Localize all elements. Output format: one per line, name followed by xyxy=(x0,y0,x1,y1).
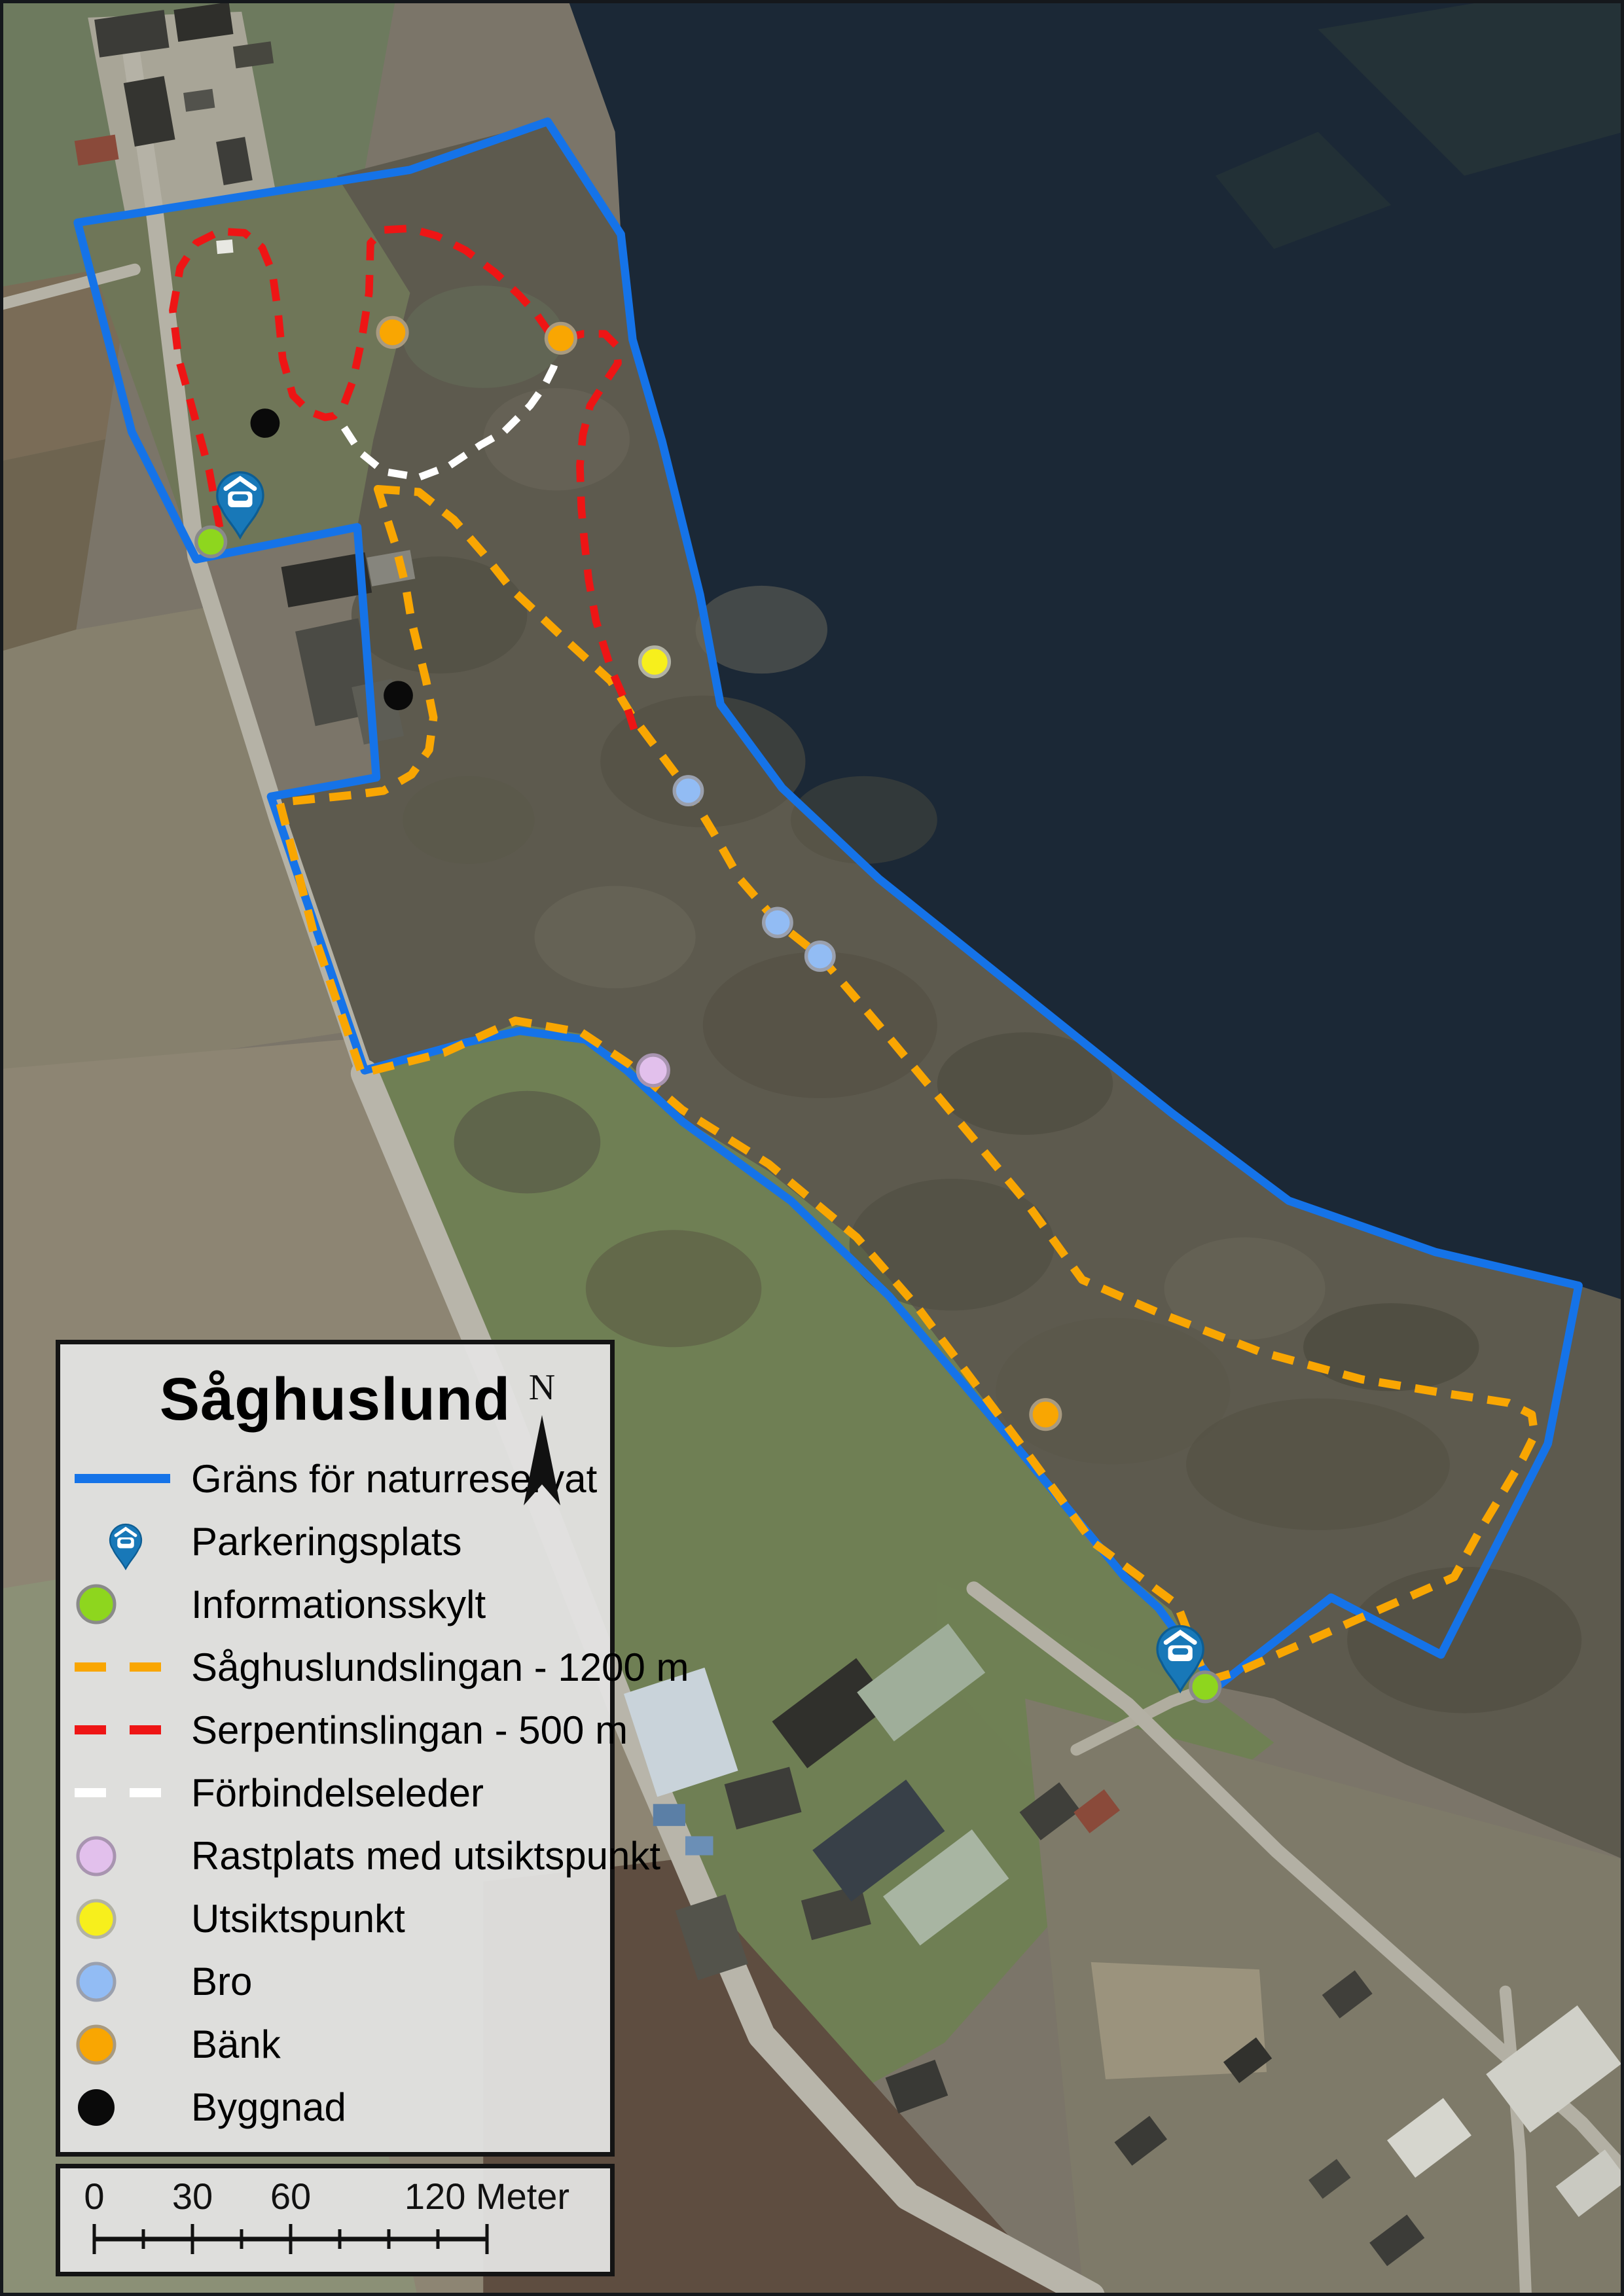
legend-item-dash-5: Förbindelseleder xyxy=(60,1764,610,1821)
forest-texture-blob xyxy=(1186,1399,1450,1530)
legend-item-label: Bänk xyxy=(191,2022,281,2067)
trail-dash-swatch xyxy=(60,1638,191,1696)
bro-dot-icon xyxy=(60,1953,191,2011)
legend-item-utsikt-7: Utsiktspunkt xyxy=(60,1890,610,1948)
bro-dot-swatch xyxy=(60,1953,191,2011)
legend-item-bro-8: Bro xyxy=(60,1953,610,2011)
bench-dot xyxy=(78,2026,115,2063)
legend-item-label: Utsiktspunkt xyxy=(191,1896,405,1941)
legend-item-label: Förbindelseleder xyxy=(191,1770,484,1816)
legend-item-label: Bro xyxy=(191,1959,252,2004)
north-label: N xyxy=(529,1368,555,1408)
bench-dot-swatch xyxy=(60,2016,191,2073)
legend-item-byggnad-10: Byggnad xyxy=(60,2079,610,2136)
rast-dot-icon xyxy=(60,1827,191,1885)
bro-marker xyxy=(764,908,792,937)
byggnad-dot xyxy=(78,2089,115,2126)
legend-items: Gräns för naturreservatParkeringsplatsIn… xyxy=(60,1446,610,2143)
car-window-icon xyxy=(232,494,248,501)
building xyxy=(653,1804,685,1826)
trail-dash-swatch xyxy=(60,1701,191,1759)
bench-marker xyxy=(1031,1400,1060,1429)
byggnad-marker xyxy=(251,408,280,438)
forest-texture-blob xyxy=(703,952,937,1098)
utsikt-marker xyxy=(640,647,670,677)
forest-texture-blob xyxy=(403,776,534,864)
utsikt-dot-swatch xyxy=(60,1890,191,1948)
bench-dot-icon xyxy=(60,2016,191,2073)
legend-item-rast-6: Rastplats med utsiktspunkt xyxy=(60,1827,610,1885)
utsikt-dot xyxy=(78,1901,115,1937)
legend-item-dash-3: Såghuslundslingan - 1200 m xyxy=(60,1638,610,1696)
north-arrow-pointer xyxy=(524,1415,560,1505)
parking-pin-icon xyxy=(110,1524,141,1569)
legend-item-bench-9: Bänk xyxy=(60,2016,610,2073)
swatch-line-icon xyxy=(60,1638,191,1696)
bench-marker xyxy=(378,317,407,347)
boundary-line-swatch xyxy=(60,1450,191,1507)
legend-item-label: Serpentinslingan - 500 m xyxy=(191,1708,628,1753)
info-dot xyxy=(78,1586,115,1623)
swatch-line-icon xyxy=(60,1450,191,1507)
legend-box: Såghuslund N Gräns för naturreservatPark… xyxy=(56,1340,615,2157)
legend-item-label: Parkeringsplats xyxy=(191,1519,462,1564)
parking-pin-icon xyxy=(60,1513,191,1570)
forest-texture-blob xyxy=(535,886,696,989)
scalebar-label: 120 Meter xyxy=(405,2176,569,2217)
utsikt-dot-icon xyxy=(60,1890,191,1948)
legend-item-dash-4: Serpentinslingan - 500 m xyxy=(60,1701,610,1759)
legend-item-pin-1: Parkeringsplats xyxy=(60,1513,610,1570)
scalebar-box: 03060120 Meter xyxy=(56,2164,615,2276)
building xyxy=(216,240,233,254)
building xyxy=(183,89,215,112)
legend-item-info-2: Informationsskylt xyxy=(60,1575,610,1633)
scalebar-label: 60 xyxy=(270,2176,311,2217)
forest-texture-blob xyxy=(586,1230,761,1347)
map-sheet: Såghuslund N Gräns för naturreservatPark… xyxy=(0,0,1624,2296)
swatch-line-icon xyxy=(60,1701,191,1759)
scalebar: 03060120 Meter xyxy=(60,2168,610,2272)
byggnad-marker xyxy=(384,681,413,710)
legend-item-label: Informationsskylt xyxy=(191,1582,486,1627)
trail-dash-swatch xyxy=(60,1764,191,1821)
info-marker xyxy=(1191,1672,1220,1702)
swatch-line-icon xyxy=(60,1764,191,1821)
info-dot-icon xyxy=(60,1575,191,1633)
scalebar-label: 0 xyxy=(84,2176,104,2217)
rast-marker xyxy=(638,1055,668,1086)
bro-marker xyxy=(806,942,835,971)
forest-texture-blob xyxy=(483,388,630,491)
legend-item-label: Byggnad xyxy=(191,2085,346,2130)
forest-texture-blob xyxy=(454,1091,601,1194)
forest-texture-blob xyxy=(403,285,564,388)
building xyxy=(685,1837,713,1856)
byggnad-dot-icon xyxy=(60,2079,191,2136)
rast-dot-swatch xyxy=(60,1827,191,1885)
byggnad-dot-swatch xyxy=(60,2079,191,2136)
car-window-icon xyxy=(1172,1648,1188,1655)
parking-pin-swatch xyxy=(60,1513,191,1570)
bench-marker xyxy=(546,323,575,353)
legend-item-label: Rastplats med utsiktspunkt xyxy=(191,1833,660,1878)
car-window-icon xyxy=(120,1539,132,1544)
north-arrow-icon: N xyxy=(503,1368,581,1518)
forest-texture-blob xyxy=(1347,1567,1581,1713)
bro-marker xyxy=(674,777,702,805)
rast-dot xyxy=(78,1838,115,1874)
legend-item-label: Såghuslundslingan - 1200 m xyxy=(191,1645,689,1690)
info-marker xyxy=(196,527,226,556)
info-dot-swatch xyxy=(60,1575,191,1633)
bro-dot xyxy=(78,1964,115,2000)
scalebar-label: 30 xyxy=(172,2176,213,2217)
forest-texture-blob xyxy=(1303,1303,1479,1391)
